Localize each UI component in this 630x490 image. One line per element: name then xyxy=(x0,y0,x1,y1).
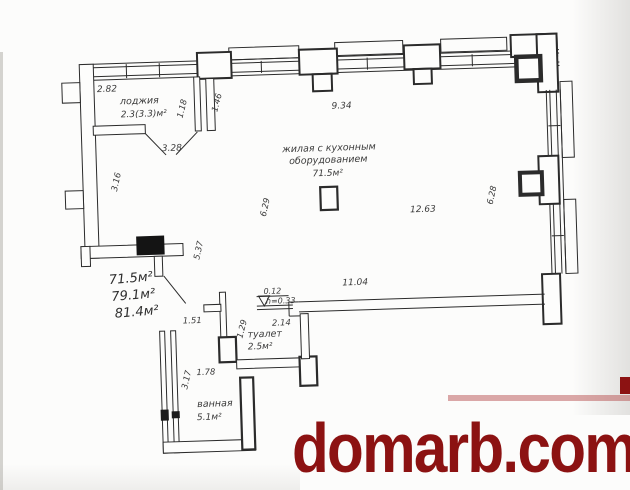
dim-hall-opening: 1.51 xyxy=(183,316,202,327)
area-summary-line2: 79.1м² xyxy=(111,286,156,305)
vent-shaft xyxy=(137,236,165,255)
toilet-area: 2.5м² xyxy=(248,342,273,353)
dim-living-width: 12.63 xyxy=(410,205,436,216)
dim-lower-left: 5.37 xyxy=(192,240,206,261)
dim-bathroom-width: 1.78 xyxy=(196,367,216,378)
living-area: 71.5м² xyxy=(312,168,343,179)
dim-step-width: 0.12 xyxy=(263,286,281,296)
top-band-piers xyxy=(197,44,441,95)
living-room-column xyxy=(320,187,338,211)
right-side-piers xyxy=(519,156,563,325)
dim-loggia-opening: 3.28 xyxy=(162,143,183,154)
dim-living-left: 6.29 xyxy=(259,197,273,218)
living-label-2: оборудованием xyxy=(289,154,368,167)
bathroom-label: ванная xyxy=(197,398,233,410)
area-summary: 71.5м² 79.1м² 81.4м² xyxy=(108,269,159,322)
right-column xyxy=(520,172,543,195)
leader-line xyxy=(164,275,186,304)
left-exterior-wall xyxy=(61,64,99,259)
living-bottom-wall xyxy=(289,294,545,316)
loggia-label: лоджия xyxy=(119,95,160,107)
dim-living-bottom: 11.04 xyxy=(342,278,368,289)
dim-toilet-depth: 2.14 xyxy=(272,318,291,329)
scanned-floorplan-page: 2.82 лоджия 2.3(3.3)м² 1.18 1.46 3.28 9.… xyxy=(0,0,630,490)
dim-step-height: h=0.33 xyxy=(266,296,296,306)
area-summary-line3: 81.4м² xyxy=(114,303,159,322)
area-summary-line1: 71.5м² xyxy=(108,269,153,288)
loggia-area: 2.3(3.3)м² xyxy=(121,109,168,120)
bathroom-area: 5.1м² xyxy=(197,412,222,423)
corner-column xyxy=(516,56,541,81)
watermark-edge-mark xyxy=(620,377,630,394)
dim-left-upper: 3.16 xyxy=(110,171,124,192)
watermark-red-strip xyxy=(448,395,630,401)
dim-loggia-pier-a: 1.18 xyxy=(176,98,190,119)
bathroom-walls xyxy=(159,328,256,453)
dim-living-right: 6.28 xyxy=(486,184,500,205)
dim-living-top: 9.34 xyxy=(331,101,352,112)
dim-loggia-width: 2.82 xyxy=(97,84,118,95)
dim-bathroom-depth: 3.17 xyxy=(180,369,194,390)
top-right-corner-wall xyxy=(510,34,558,93)
toilet-label: туалет xyxy=(247,328,282,340)
watermark-domarb: domarb.com xyxy=(292,413,584,485)
